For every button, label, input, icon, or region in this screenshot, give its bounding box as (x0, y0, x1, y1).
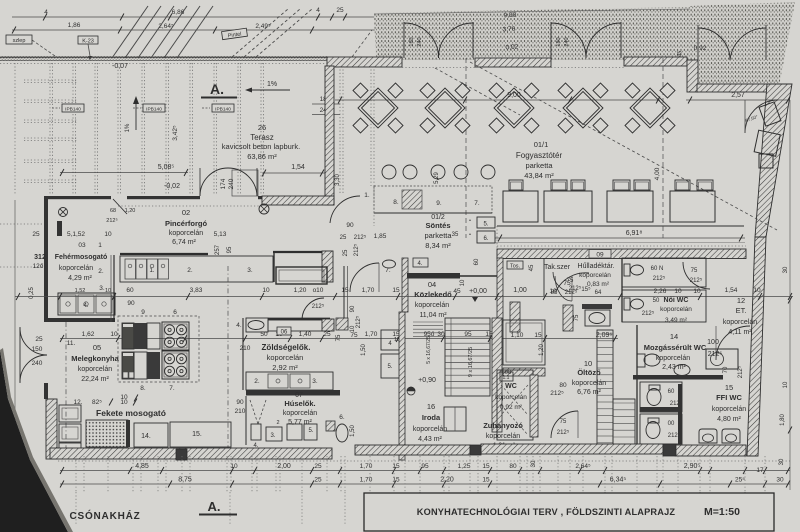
svg-text:25: 25 (336, 7, 344, 14)
svg-text:15: 15 (341, 287, 349, 294)
svg-text:30: 30 (776, 477, 784, 484)
svg-text:68: 68 (110, 208, 116, 214)
svg-text:10: 10 (230, 463, 238, 470)
svg-text:26: 26 (258, 123, 266, 132)
svg-text:A.: A. (210, 81, 224, 97)
svg-text:-0,07: -0,07 (112, 63, 128, 70)
svg-text:szlep: szlep (13, 38, 26, 44)
svg-text:Tos.: Tos. (510, 264, 521, 270)
svg-text:25: 25 (340, 235, 347, 241)
svg-text:5,29: 5,29 (434, 172, 440, 184)
svg-text:9.: 9. (436, 200, 442, 207)
svg-text:1,70: 1,70 (360, 477, 373, 484)
svg-text:212⁵: 212⁵ (106, 217, 117, 224)
svg-text:174: 174 (220, 178, 227, 189)
svg-text:25: 25 (314, 477, 322, 484)
svg-text:212⁵: 212⁵ (708, 351, 723, 358)
svg-text:4,85: 4,85 (135, 463, 149, 470)
svg-text:2.: 2. (187, 267, 193, 274)
svg-text:3.: 3. (270, 433, 275, 439)
svg-text:212⁵: 212⁵ (550, 390, 564, 397)
svg-text:90: 90 (127, 300, 135, 307)
svg-text:10: 10 (549, 288, 557, 295)
svg-text:3.: 3. (312, 378, 318, 385)
svg-text:70: 70 (723, 366, 729, 373)
svg-text:parketta: parketta (525, 161, 553, 170)
svg-text:Tak.szer: Tak.szer (544, 264, 571, 271)
svg-text:Hűlladéktár.: Hűlladéktár. (578, 263, 615, 270)
svg-text:1,40: 1,40 (299, 331, 312, 338)
svg-text:kavicsolt beton lapburk.: kavicsolt beton lapburk. (222, 142, 300, 151)
svg-text:CSÓNAKHÁZ: CSÓNAKHÁZ (69, 509, 140, 522)
svg-text:90: 90 (350, 305, 356, 312)
svg-text:3,49 m²: 3,49 m² (665, 317, 688, 324)
svg-text:5 x 16,67/25: 5 x 16,67/25 (426, 336, 432, 364)
svg-text:1,50: 1,50 (350, 425, 356, 437)
svg-text:60: 60 (126, 287, 134, 294)
svg-text:2,09⁶: 2,09⁶ (596, 332, 613, 339)
svg-text:10: 10 (350, 325, 356, 332)
svg-text:1,62: 1,62 (82, 331, 95, 338)
svg-text:1.: 1. (149, 268, 154, 274)
svg-text:210: 210 (235, 408, 246, 415)
svg-text:koporcelán: koporcelán (283, 410, 317, 417)
svg-text:KONYHATECHNOLÓGIAI TERV , FÖLD: KONYHATECHNOLÓGIAI TERV , FÖLDSZINTI ALA… (417, 506, 676, 517)
svg-text:1,20: 1,20 (539, 344, 545, 356)
svg-text:4,11 m²: 4,11 m² (728, 329, 752, 336)
svg-text:5.: 5. (308, 428, 313, 434)
svg-text:1,20: 1,20 (125, 208, 136, 214)
svg-text:1,50: 1,50 (361, 344, 367, 356)
svg-text:1: 1 (98, 242, 102, 249)
svg-text:IPB140: IPB140 (65, 107, 81, 113)
svg-text:75: 75 (567, 278, 574, 284)
svg-text:koporcelán: koporcelán (712, 406, 746, 413)
svg-text:14: 14 (670, 332, 678, 341)
svg-text:Öltöző: Öltöző (577, 368, 601, 377)
svg-text:257: 257 (215, 244, 221, 255)
svg-text:6.: 6. (483, 236, 488, 242)
svg-text:22,24 m²: 22,24 m² (81, 376, 109, 383)
svg-text:IPB140: IPB140 (215, 107, 231, 113)
svg-text:1,10: 1,10 (511, 332, 524, 339)
svg-text:180: 180 (556, 37, 562, 46)
svg-text:10: 10 (120, 399, 128, 406)
svg-text:06: 06 (281, 330, 288, 336)
svg-text:80: 80 (509, 463, 517, 470)
svg-text:2,00: 2,00 (277, 463, 291, 470)
svg-text:30: 30 (531, 460, 537, 467)
svg-text:64: 64 (595, 290, 602, 296)
svg-text:1,70: 1,70 (362, 287, 375, 294)
svg-text:koporcelán: koporcelán (78, 366, 112, 373)
svg-text:82⁵: 82⁵ (92, 399, 102, 406)
svg-text:95: 95 (227, 246, 233, 253)
svg-text:4.: 4. (417, 261, 422, 267)
svg-text:koporcelán: koporcelán (267, 353, 304, 362)
svg-text:2,92 m²: 2,92 m² (272, 363, 298, 372)
svg-text:6,74 m²: 6,74 m² (172, 239, 196, 246)
svg-text:90: 90 (346, 222, 354, 229)
svg-text:koporcelán: koporcelán (486, 433, 520, 440)
svg-text:3.: 3. (247, 267, 253, 274)
svg-text:1,85: 1,85 (374, 233, 387, 240)
svg-text:8,34 m²: 8,34 m² (425, 241, 451, 250)
svg-text:1,80: 1,80 (780, 414, 786, 426)
svg-text:5,1,52: 5,1,52 (67, 231, 85, 238)
svg-text:5.: 5. (387, 364, 392, 370)
svg-text:1.1: 1.1 (503, 375, 510, 381)
svg-text:1,70: 1,70 (360, 463, 373, 470)
svg-text:4,80 m²: 4,80 m² (717, 416, 741, 423)
svg-text:9,00: 9,00 (503, 12, 516, 20)
svg-text:WC: WC (505, 383, 517, 390)
svg-text:4: 4 (44, 9, 48, 16)
svg-text:0,25: 0,25 (29, 287, 35, 299)
svg-text:25: 25 (343, 249, 349, 256)
svg-text:1,86: 1,86 (68, 22, 81, 29)
svg-text:6,91⁸: 6,91⁸ (626, 230, 643, 237)
svg-text:7.: 7. (169, 385, 175, 392)
svg-text:60: 60 (668, 389, 675, 395)
svg-text:Zuhanyozó: Zuhanyozó (483, 421, 523, 430)
svg-text:01/2: 01/2 (431, 214, 445, 221)
svg-text:312: 312 (34, 254, 46, 261)
svg-text:2,49⁵: 2,49⁵ (255, 23, 271, 30)
svg-text:11,04 m²: 11,04 m² (419, 312, 447, 319)
svg-text:koporcelán: koporcelán (572, 380, 606, 387)
svg-text:koporcelán: koporcelán (723, 319, 757, 326)
svg-text:15: 15 (482, 463, 490, 470)
svg-text:180: 180 (409, 37, 415, 46)
svg-text:75: 75 (560, 419, 567, 425)
svg-text:75: 75 (574, 314, 580, 321)
svg-text:10: 10 (693, 288, 701, 295)
svg-text:koporcelán: koporcelán (169, 230, 203, 237)
svg-text:8.: 8. (393, 199, 399, 206)
svg-text:15⁵: 15⁵ (581, 286, 591, 293)
svg-text:15: 15 (392, 287, 400, 294)
svg-text:100: 100 (707, 339, 719, 346)
svg-text:90: 90 (236, 399, 244, 406)
svg-text:95: 95 (421, 463, 429, 470)
svg-text:15: 15 (725, 383, 733, 392)
svg-text:17: 17 (756, 467, 764, 474)
svg-text:10: 10 (753, 287, 761, 294)
svg-text:63,86 m²: 63,86 m² (247, 152, 277, 161)
svg-text:-0,02: -0,02 (164, 183, 180, 190)
svg-text:03: 03 (78, 242, 86, 249)
svg-text:7.: 7. (474, 200, 480, 207)
svg-text:10: 10 (783, 381, 789, 388)
svg-text:50: 50 (653, 298, 660, 304)
svg-text:koporcelán: koporcelán (415, 302, 449, 309)
svg-text:5.: 5. (483, 222, 488, 228)
svg-text:3,42⁵: 3,42⁵ (172, 125, 179, 141)
svg-text:45: 45 (453, 288, 461, 295)
svg-text:212⁵: 212⁵ (653, 275, 666, 282)
svg-text:212⁵: 212⁵ (569, 285, 582, 292)
svg-text:240: 240 (564, 37, 570, 46)
svg-text:43,84 m²: 43,84 m² (524, 171, 554, 180)
svg-text:15: 15 (392, 463, 400, 470)
svg-text:Söntés: Söntés (425, 221, 450, 230)
svg-text:•: • (469, 218, 471, 224)
svg-text:Fogyasztótér: Fogyasztótér (516, 151, 563, 160)
svg-text:+0,00: +0,00 (469, 288, 487, 295)
svg-text:75: 75 (336, 334, 342, 341)
svg-text:15.: 15. (192, 431, 202, 438)
svg-text:212⁵: 212⁵ (312, 303, 325, 310)
svg-text:Mozgássérült WC: Mozgássérült WC (644, 343, 707, 352)
svg-text:212⁵: 212⁵ (557, 429, 570, 436)
svg-text:212⁵: 212⁵ (642, 310, 655, 317)
svg-text:75: 75 (691, 268, 698, 274)
svg-text:16: 16 (427, 402, 435, 411)
svg-text:2.: 2. (98, 268, 104, 275)
svg-text:4,43 m²: 4,43 m² (418, 436, 442, 443)
svg-text:Fehérmosogató: Fehérmosogató (55, 254, 108, 261)
svg-text:4.: 4. (236, 322, 242, 329)
svg-text:IPB140: IPB140 (146, 107, 162, 113)
svg-text:14.: 14. (141, 433, 151, 440)
svg-text:2: 2 (276, 420, 279, 426)
svg-text:koporcelán: koporcelán (413, 426, 447, 433)
svg-text:1,52: 1,52 (75, 288, 86, 294)
svg-text:10: 10 (262, 287, 270, 294)
svg-text:35: 35 (452, 232, 459, 238)
svg-text:10: 10 (104, 231, 112, 238)
svg-text:FFI WC: FFI WC (716, 393, 742, 402)
svg-text:0,02: 0,02 (505, 44, 518, 52)
svg-text:25: 25 (314, 463, 322, 470)
svg-text:3,76: 3,76 (502, 26, 515, 34)
svg-text:K-23: K-23 (82, 39, 94, 45)
svg-text:30: 30 (437, 331, 445, 338)
svg-text:00: 00 (668, 421, 675, 427)
svg-text:15: 15 (534, 332, 542, 339)
svg-text:150: 150 (32, 346, 43, 353)
svg-text:1%: 1% (125, 123, 131, 132)
svg-text:25: 25 (323, 331, 331, 338)
svg-text:8.: 8. (140, 385, 146, 392)
svg-text:1,70: 1,70 (365, 331, 378, 338)
svg-text:Iroda: Iroda (422, 413, 441, 422)
svg-text:M=1:50: M=1:50 (704, 506, 740, 518)
svg-text:1,25: 1,25 (458, 463, 471, 470)
svg-text:koporcelán: koporcelán (59, 265, 93, 272)
svg-text:10: 10 (674, 288, 682, 295)
svg-text:12: 12 (737, 296, 745, 305)
svg-text:2,90⁵: 2,90⁵ (684, 463, 701, 470)
svg-text:9 x 16,67/25: 9 x 16,67/25 (468, 347, 474, 377)
svg-text:ET.: ET. (736, 306, 747, 315)
svg-text:10: 10 (105, 288, 111, 294)
svg-text:1,54: 1,54 (291, 164, 305, 171)
svg-text:Terasz: Terasz (250, 133, 274, 142)
svg-text:7.: 7. (385, 267, 391, 274)
svg-text:15: 15 (482, 477, 490, 484)
svg-text:6.: 6. (339, 414, 345, 421)
svg-text:25⁵: 25⁵ (735, 477, 745, 484)
svg-text:parketta: parketta (424, 231, 452, 240)
svg-text:5,08⁵: 5,08⁵ (158, 164, 175, 171)
svg-text:1%: 1% (267, 81, 277, 88)
svg-text:15: 15 (392, 477, 400, 484)
svg-text:80: 80 (559, 382, 567, 389)
svg-text:07: 07 (295, 392, 303, 399)
svg-text:25: 25 (32, 231, 40, 238)
svg-text:04: 04 (428, 280, 436, 289)
svg-text:212⁵: 212⁵ (737, 365, 744, 378)
svg-text:210: 210 (240, 345, 251, 352)
svg-text:11.: 11. (67, 340, 76, 347)
svg-text:Húselők.: Húselők. (284, 399, 315, 408)
svg-text:240: 240 (32, 360, 43, 367)
svg-text:1,20: 1,20 (294, 287, 307, 294)
svg-text:09: 09 (596, 252, 604, 259)
svg-text:2.: 2. (254, 378, 260, 385)
svg-text:10: 10 (584, 359, 592, 368)
svg-text:212⁵: 212⁵ (690, 277, 703, 284)
svg-text:koporcelán: koporcelán (656, 355, 690, 362)
svg-text:4,00: 4,00 (654, 167, 661, 180)
svg-text:35: 35 (677, 50, 684, 57)
svg-text:05: 05 (93, 343, 101, 352)
svg-text:60 N: 60 N (651, 266, 664, 272)
svg-text:9: 9 (141, 309, 145, 316)
svg-text:212⁵: 212⁵ (353, 243, 360, 256)
svg-text:2,20: 2,20 (440, 477, 454, 484)
svg-text:45: 45 (529, 264, 535, 271)
svg-text:4.: 4. (83, 303, 88, 309)
svg-text:koporcelán: koporcelán (660, 306, 692, 313)
svg-text:3,30: 3,30 (335, 174, 341, 186)
svg-text:25: 25 (35, 336, 43, 343)
svg-text:212⁵: 212⁵ (354, 234, 367, 241)
svg-text:A.: A. (208, 499, 221, 514)
svg-text:Melegkonyha: Melegkonyha (71, 354, 119, 363)
svg-text:5,13: 5,13 (214, 231, 227, 238)
svg-text:30: 30 (779, 458, 785, 465)
svg-text:2,57: 2,57 (731, 92, 745, 99)
svg-text:240: 240 (417, 37, 423, 46)
svg-text:2,26: 2,26 (654, 288, 667, 295)
svg-text:60: 60 (474, 258, 480, 265)
svg-text:Közlekedő: Közlekedő (414, 290, 452, 299)
svg-text:Fekete mosogató: Fekete mosogató (96, 408, 166, 418)
svg-text:3,83: 3,83 (190, 287, 203, 294)
svg-text:01/1: 01/1 (534, 140, 549, 149)
svg-text:1.: 1. (364, 192, 370, 199)
svg-text:30: 30 (783, 266, 789, 273)
svg-text:koporcelán: koporcelán (495, 394, 527, 401)
svg-text:1,54: 1,54 (725, 287, 738, 294)
svg-text:Zöldségelők.: Zöldségelők. (262, 343, 311, 352)
svg-text:Női WC: Női WC (664, 297, 689, 304)
svg-text:10: 10 (110, 331, 118, 338)
svg-text:240: 240 (228, 178, 235, 189)
svg-text:1,00: 1,00 (513, 287, 527, 294)
svg-text:4,29 m²: 4,29 m² (68, 275, 92, 282)
svg-text:5,77 m²: 5,77 m² (288, 419, 312, 426)
svg-text:Pincérforgó: Pincérforgó (165, 219, 208, 228)
svg-text:+0,90: +0,90 (418, 377, 436, 384)
svg-text:212⁵: 212⁵ (355, 315, 362, 328)
svg-text:10: 10 (460, 279, 466, 286)
svg-text:6: 6 (173, 309, 177, 316)
svg-text:•: • (469, 232, 471, 238)
svg-text:12ő: 12ő (33, 263, 44, 270)
svg-text:4: 4 (316, 7, 320, 14)
svg-text:02: 02 (182, 208, 190, 217)
svg-text:0,92: 0,92 (694, 45, 707, 52)
svg-text:o10: o10 (313, 287, 324, 294)
